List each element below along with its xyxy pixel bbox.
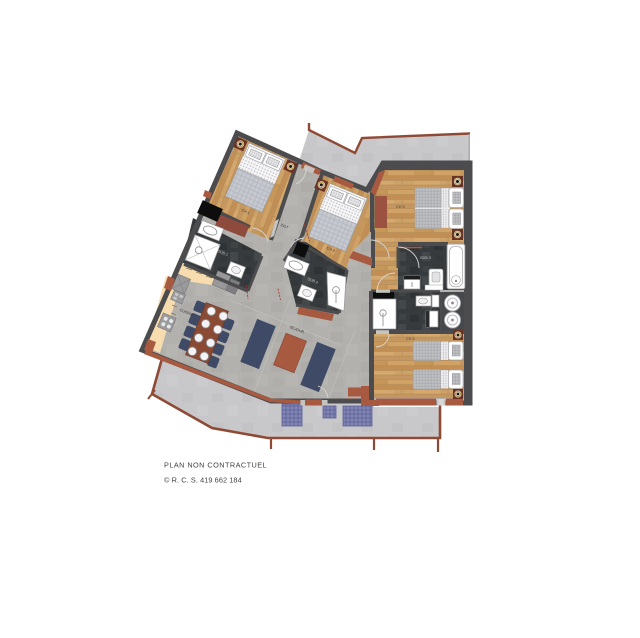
- svg-text:PLAN NON CONTRACTUEL: PLAN NON CONTRACTUEL: [164, 461, 267, 470]
- svg-text:SDB 3: SDB 3: [420, 256, 431, 260]
- svg-text:CH 4: CH 4: [406, 337, 415, 341]
- svg-text:© R. C. S. 419 662 184: © R. C. S. 419 662 184: [164, 476, 242, 485]
- svg-text:CH 3: CH 3: [396, 205, 405, 209]
